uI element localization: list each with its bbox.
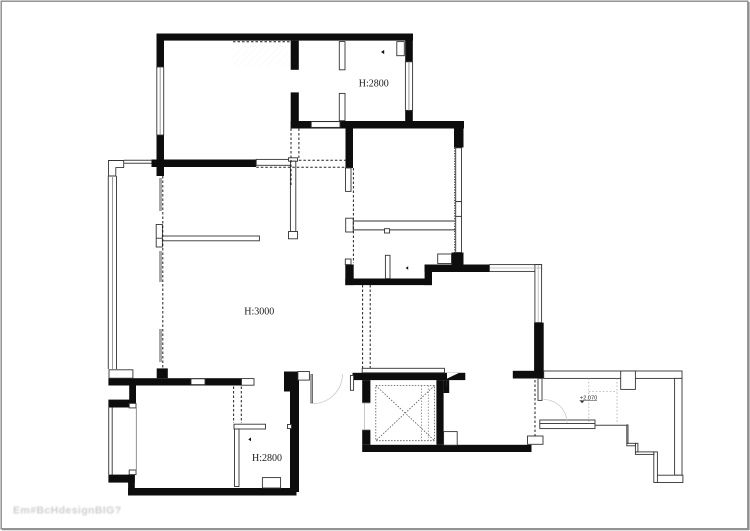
svg-text:H:3000: H:3000 [244, 307, 274, 318]
svg-text:Em#BcHdesignBIG?: Em#BcHdesignBIG? [13, 505, 122, 517]
svg-text:H:2800: H:2800 [359, 78, 389, 89]
svg-text:H:2800: H:2800 [252, 453, 282, 464]
